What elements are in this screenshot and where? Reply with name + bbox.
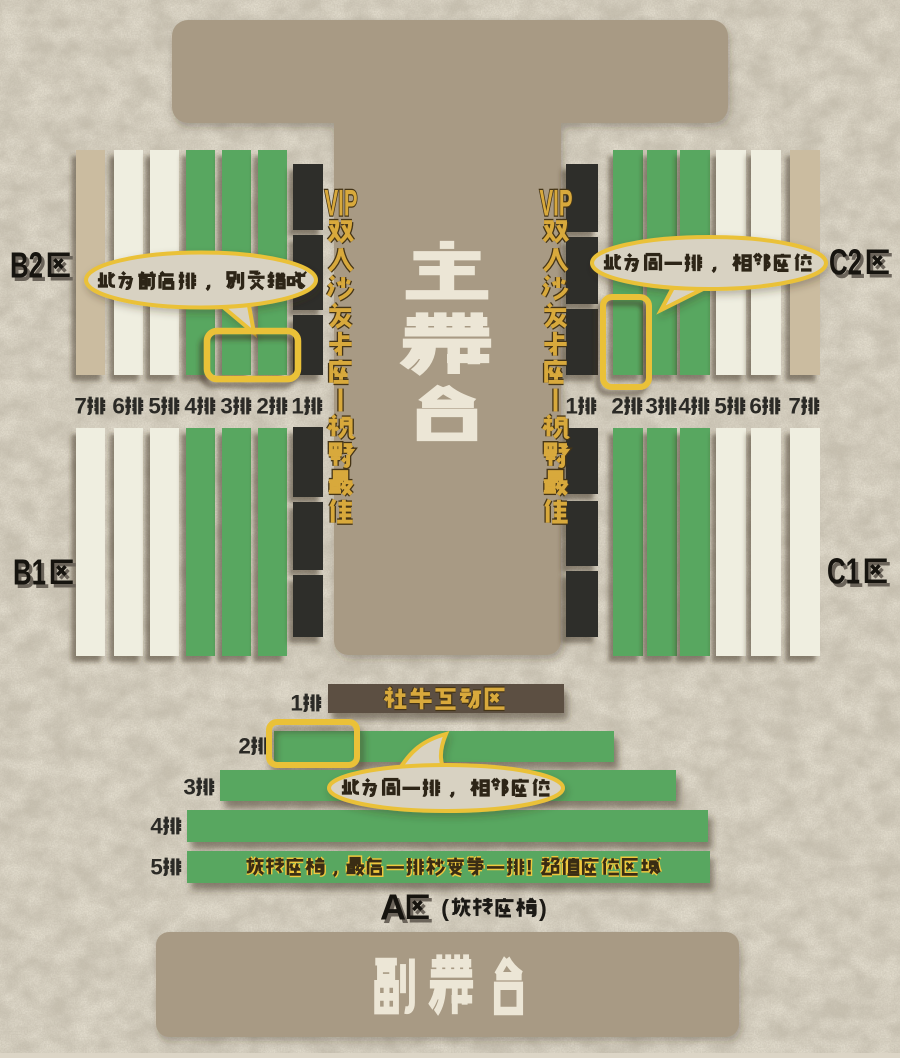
svg-text:B2: B2 — [10, 245, 43, 286]
svg-text:1: 1 — [565, 394, 577, 419]
svg-text:!: ! — [526, 855, 533, 880]
svg-text:A: A — [380, 887, 406, 928]
svg-text:VIP: VIP — [540, 183, 573, 224]
svg-text:(: ( — [441, 895, 449, 921]
svg-text:C2: C2 — [829, 242, 862, 283]
svg-text:2: 2 — [238, 734, 250, 759]
svg-text:1: 1 — [290, 691, 302, 716]
svg-text:5: 5 — [714, 394, 726, 419]
svg-text:4: 4 — [150, 814, 163, 839]
svg-text:VIP: VIP — [325, 183, 358, 224]
svg-text:B1: B1 — [13, 552, 46, 593]
svg-text:3: 3 — [645, 394, 657, 419]
svg-text:5: 5 — [148, 394, 160, 419]
svg-text:3: 3 — [183, 775, 195, 800]
svg-text:7: 7 — [788, 394, 800, 419]
svg-text:4: 4 — [184, 394, 197, 419]
svg-text:6: 6 — [112, 394, 124, 419]
svg-text:2: 2 — [611, 394, 623, 419]
svg-text:7: 7 — [74, 394, 86, 419]
svg-text:5: 5 — [150, 855, 162, 880]
svg-text:4: 4 — [678, 394, 691, 419]
svg-text:1: 1 — [291, 394, 303, 419]
svg-text:2: 2 — [256, 394, 268, 419]
svg-text:): ) — [539, 895, 547, 921]
svg-text:3: 3 — [220, 394, 232, 419]
svg-text:C1: C1 — [827, 551, 860, 592]
svg-text:6: 6 — [749, 394, 761, 419]
